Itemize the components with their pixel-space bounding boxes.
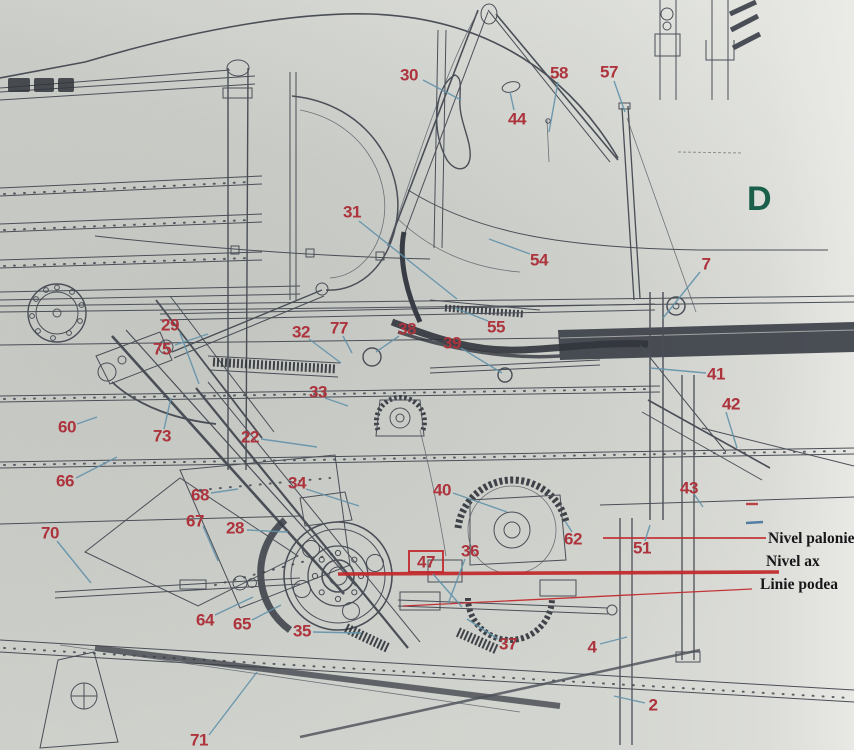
callout-40: 40 — [433, 481, 451, 500]
leader-line-37 — [467, 619, 498, 639]
callout-22: 22 — [241, 428, 259, 447]
gear-cover-panels — [85, 455, 350, 608]
reference-label-nivel-ax: Nivel ax — [766, 553, 820, 570]
callout-68: 68 — [191, 486, 209, 505]
scanned-page: Nivel palonierNivel axLinie podea 304458… — [0, 0, 854, 750]
callout-2: 2 — [649, 696, 658, 715]
leader-line-71 — [209, 672, 257, 735]
callout-71: 71 — [190, 731, 208, 750]
leader-line-2 — [614, 696, 645, 703]
jack-stand — [40, 652, 118, 748]
reference-label-nivel-palonier: Nivel palonier — [768, 530, 854, 547]
callout-34: 34 — [288, 474, 307, 493]
callout-51: 51 — [633, 539, 651, 558]
tick-mark-1 — [746, 522, 763, 523]
aft-mast — [619, 103, 742, 312]
leader-line-30 — [423, 80, 461, 100]
leader-line-67 — [203, 526, 218, 561]
leader-line-28 — [247, 530, 288, 532]
rollover-pylon — [223, 60, 296, 470]
callout-4: 4 — [588, 638, 598, 657]
callout-64: 64 — [196, 611, 215, 630]
callout-65: 65 — [233, 615, 251, 634]
callout-36: 36 — [461, 542, 479, 561]
leader-line-54 — [489, 239, 530, 254]
callout-43: 43 — [680, 479, 698, 498]
reference-line-linie-podea — [403, 589, 752, 606]
leader-line-33 — [325, 398, 348, 406]
callout-67: 67 — [186, 512, 204, 531]
callout-70: 70 — [41, 524, 59, 543]
callout-66: 66 — [56, 472, 74, 491]
leader-line-41 — [650, 368, 706, 373]
leader-line-68 — [211, 489, 238, 493]
tick-marks-layer — [746, 504, 763, 523]
leader-line-70 — [57, 541, 91, 583]
elevator-quadrant-gear — [376, 397, 424, 436]
leader-line-44 — [510, 92, 514, 110]
callout-42: 42 — [722, 395, 740, 414]
callout-41: 41 — [707, 365, 725, 384]
callout-44: 44 — [508, 110, 527, 129]
callout-60: 60 — [58, 418, 76, 437]
leader-line-22 — [261, 439, 317, 447]
leader-line-60 — [77, 417, 97, 424]
leader-line-4 — [600, 637, 627, 644]
callout-77: 77 — [330, 319, 348, 338]
callout-47: 47 — [417, 553, 435, 572]
leader-line-32 — [309, 339, 341, 363]
callout-37: 37 — [499, 635, 517, 654]
marking-blocks — [8, 78, 74, 92]
wing-root-flange — [28, 284, 86, 342]
callout-75: 75 — [153, 340, 171, 359]
reference-lines-layer: Nivel palonierNivel axLinie podea — [338, 530, 854, 606]
left-fuselage-stringers — [0, 76, 300, 300]
spare-part-tubes-top-right — [655, 0, 760, 100]
leader-line-58 — [549, 82, 558, 132]
callout-38: 38 — [398, 320, 416, 339]
technical-drawing-canvas: Nivel palonierNivel axLinie podea 304458… — [0, 0, 854, 750]
callout-32: 32 — [292, 323, 310, 342]
section-letter: D — [747, 180, 772, 218]
leader-line-77 — [343, 336, 352, 353]
callout-7: 7 — [702, 255, 711, 274]
leader-line-55 — [455, 308, 488, 321]
reference-label-linie-podea: Linie podea — [760, 576, 838, 593]
callout-35: 35 — [293, 622, 311, 641]
leader-line-34 — [306, 489, 359, 506]
callout-29: 29 — [161, 316, 179, 335]
reference-line-nivel-ax — [338, 572, 779, 574]
windscreen-a-frame — [388, 4, 618, 248]
leader-line-64 — [215, 597, 253, 615]
callout-73: 73 — [153, 427, 171, 446]
callout-55: 55 — [487, 318, 505, 337]
callout-62: 62 — [564, 530, 582, 549]
right-side-posts — [620, 292, 854, 745]
callout-28: 28 — [226, 519, 244, 538]
leader-line-42 — [726, 412, 737, 448]
main-wheel — [261, 492, 392, 630]
callout-30: 30 — [400, 66, 418, 85]
control-cables — [95, 190, 828, 260]
bottom-bracing — [0, 640, 854, 737]
callout-57: 57 — [600, 63, 618, 82]
callout-54: 54 — [530, 251, 549, 270]
leader-line-38 — [376, 336, 399, 352]
callout-31: 31 — [343, 203, 361, 222]
callout-58: 58 — [550, 64, 568, 83]
leader-line-7 — [663, 272, 700, 318]
leader-line-35 — [313, 632, 361, 633]
callout-39: 39 — [443, 334, 461, 353]
callout-33: 33 — [309, 383, 327, 402]
